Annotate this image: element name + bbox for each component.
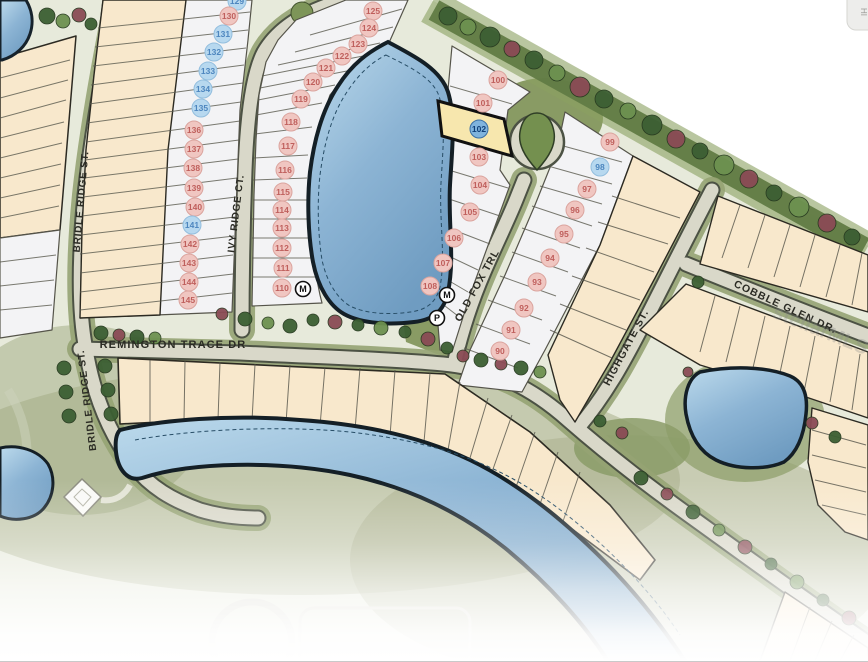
lot-number-badge: 138 xyxy=(184,159,202,177)
tree-icon xyxy=(504,41,520,57)
tree-icon xyxy=(829,431,841,443)
lot-number: 117 xyxy=(281,141,295,151)
lot-number-badge: 100 xyxy=(489,71,507,89)
lot-number-badge: 108 xyxy=(421,277,439,295)
amenity-marker-p: P xyxy=(430,311,445,326)
lot-number-badge: 141 xyxy=(183,216,201,234)
tree-icon xyxy=(818,214,836,232)
tree-icon xyxy=(352,319,364,331)
lot-number: 94 xyxy=(545,253,555,263)
street-label-remington-trace-dr: REMINGTON TRACE DR xyxy=(100,339,247,351)
tree-icon xyxy=(595,90,613,108)
tree-icon xyxy=(642,115,662,135)
lot-block-west-edge-white xyxy=(0,230,60,338)
lot-number-badge: 143 xyxy=(180,254,198,272)
tree-icon xyxy=(421,332,435,346)
lot-number: 113 xyxy=(275,223,289,233)
lot-number-badge: 93 xyxy=(528,273,546,291)
lot-number-badge: 90 xyxy=(491,342,509,360)
tree-icon xyxy=(374,321,388,335)
tree-icon xyxy=(616,427,628,439)
lot-number-badge: 135 xyxy=(192,99,210,117)
tree-icon xyxy=(94,326,108,340)
lot-number: 115 xyxy=(276,187,290,197)
lot-number: 134 xyxy=(196,84,210,94)
lot-number: 136 xyxy=(187,125,201,135)
tree-icon xyxy=(283,319,297,333)
lot-number: 90 xyxy=(495,346,505,356)
lot-number-badge: 123 xyxy=(349,35,367,53)
lot-number: 135 xyxy=(194,103,208,113)
tree-icon xyxy=(307,314,319,326)
tree-icon xyxy=(789,197,809,217)
lot-number-badge: 105 xyxy=(461,203,479,221)
lot-number-badge: 92 xyxy=(515,299,533,317)
lot-number: 112 xyxy=(275,243,289,253)
lot-number: 100 xyxy=(491,75,505,85)
lot-number: 137 xyxy=(187,144,201,154)
tree-icon xyxy=(480,27,500,47)
tree-icon xyxy=(262,317,274,329)
lot-number: 91 xyxy=(506,325,516,335)
lot-number: 107 xyxy=(436,258,450,268)
tree-icon xyxy=(534,366,546,378)
tree-icon xyxy=(72,8,86,22)
lot-number: 121 xyxy=(319,63,333,73)
tree-icon xyxy=(238,312,252,326)
lot-number: 140 xyxy=(188,202,202,212)
amenity-marker-m: M xyxy=(440,288,455,303)
lot-number-badge: 117 xyxy=(279,137,297,155)
lot-number: 92 xyxy=(519,303,529,313)
tree-icon xyxy=(59,385,73,399)
lot-number: 93 xyxy=(532,277,542,287)
lot-number-badge: 111 xyxy=(274,259,292,277)
lot-number: 105 xyxy=(463,207,477,217)
tree-icon xyxy=(216,308,228,320)
tree-icon xyxy=(98,359,112,373)
corner-ui-tab[interactable]: HI xyxy=(847,0,868,30)
tree-icon xyxy=(549,65,565,81)
lot-number-badge: 144 xyxy=(180,273,198,291)
tree-icon xyxy=(570,77,590,97)
tree-icon xyxy=(844,229,860,245)
amenity-marker-letter: M xyxy=(299,284,307,294)
tree-icon xyxy=(328,315,342,329)
lot-number-badge: 102 xyxy=(470,120,488,138)
lot-number: 102 xyxy=(472,124,486,134)
lot-number-badge: 96 xyxy=(566,201,584,219)
lot-number: 103 xyxy=(472,152,486,162)
lot-number-badge: 110 xyxy=(273,279,291,297)
tree-icon xyxy=(56,14,70,28)
pond-east xyxy=(685,368,806,468)
site-plan-image: BRIDLE RIDGE ST.BRIDLE RIDGE ST.IVY RIDG… xyxy=(0,0,868,662)
lot-number: 130 xyxy=(222,11,236,21)
lot-number-badge: 106 xyxy=(445,229,463,247)
lot-number: 131 xyxy=(216,29,230,39)
lot-number-badge: 104 xyxy=(471,176,489,194)
lot-number: 141 xyxy=(185,220,199,230)
lot-number-badge: 107 xyxy=(434,254,452,272)
lot-number: 104 xyxy=(473,180,487,190)
lot-number-badge: 125 xyxy=(364,2,382,20)
lot-number-badge: 114 xyxy=(273,201,291,219)
bottom-fade xyxy=(0,470,868,661)
tree-icon xyxy=(399,326,411,338)
lot-number-badge: 133 xyxy=(199,62,217,80)
lot-number: 110 xyxy=(275,283,289,293)
lot-number-badge: 132 xyxy=(205,43,223,61)
amenity-marker-m: M xyxy=(296,282,311,297)
tree-icon xyxy=(439,7,457,25)
lot-number: 132 xyxy=(207,47,221,57)
lot-number-badge: 97 xyxy=(578,180,596,198)
lot-number-badge: 134 xyxy=(194,80,212,98)
tree-icon xyxy=(101,383,115,397)
lot-number: 95 xyxy=(559,229,569,239)
lot-number: 129 xyxy=(230,0,244,6)
tree-icon xyxy=(514,361,528,375)
lot-number-badge: 95 xyxy=(555,225,573,243)
lot-number-badge: 142 xyxy=(181,235,199,253)
lot-number-badge: 131 xyxy=(214,25,232,43)
lot-number-badge: 119 xyxy=(292,90,310,108)
lot-number: 120 xyxy=(306,77,320,87)
lot-number-badge: 124 xyxy=(360,19,378,37)
lot-number: 123 xyxy=(351,39,365,49)
lot-number-badge: 98 xyxy=(591,158,609,176)
lot-number: 98 xyxy=(595,162,605,172)
lot-number-badge: 137 xyxy=(185,140,203,158)
tree-icon xyxy=(57,361,71,375)
lot-number: 99 xyxy=(605,137,615,147)
lot-number-badge: 118 xyxy=(282,113,300,131)
tree-icon xyxy=(104,407,118,421)
lot-number: 101 xyxy=(476,98,490,108)
site-plan-map: BRIDLE RIDGE ST.BRIDLE RIDGE ST.IVY RIDG… xyxy=(0,0,868,661)
lot-number-badge: 101 xyxy=(474,94,492,112)
lot-number-badge: 112 xyxy=(273,239,291,257)
tree-icon xyxy=(683,367,693,377)
lot-number: 144 xyxy=(182,277,196,287)
lot-number-badge: 99 xyxy=(601,133,619,151)
lot-number: 119 xyxy=(294,94,308,104)
tree-icon xyxy=(474,353,488,367)
lot-number-badge: 113 xyxy=(273,219,291,237)
lot-number: 122 xyxy=(335,51,349,61)
amenity-marker-letter: M xyxy=(443,290,451,300)
tree-icon xyxy=(457,350,469,362)
lot-number-badge: 91 xyxy=(502,321,520,339)
lot-number: 114 xyxy=(275,205,289,215)
tree-icon xyxy=(39,8,55,24)
lot-number-badge: 139 xyxy=(185,179,203,197)
lot-number-badge: 116 xyxy=(276,161,294,179)
lot-number-badge: 94 xyxy=(541,249,559,267)
lot-number: 125 xyxy=(366,6,380,16)
lot-number: 111 xyxy=(276,263,290,273)
tree-icon xyxy=(806,417,818,429)
lot-number: 143 xyxy=(182,258,196,268)
lot-number: 108 xyxy=(423,281,437,291)
cul-de-sac xyxy=(510,113,564,170)
lot-number-badge: 103 xyxy=(470,148,488,166)
lot-number-badge: 140 xyxy=(186,198,204,216)
lot-number-badge: 145 xyxy=(179,291,197,309)
tree-icon xyxy=(620,103,636,119)
tree-icon xyxy=(667,130,685,148)
lot-number: 118 xyxy=(284,117,298,127)
lot-number: 139 xyxy=(187,183,201,193)
lot-number: 133 xyxy=(201,66,215,76)
lot-number: 138 xyxy=(186,163,200,173)
lot-number-badge: 122 xyxy=(333,47,351,65)
lot-number: 142 xyxy=(183,239,197,249)
lot-number: 106 xyxy=(447,233,461,243)
lot-number-badge: 120 xyxy=(304,73,322,91)
lot-number: 145 xyxy=(181,295,195,305)
tree-icon xyxy=(441,342,453,354)
tree-icon xyxy=(525,51,543,69)
tree-icon xyxy=(692,143,708,159)
lot-number: 116 xyxy=(278,165,292,175)
tree-icon xyxy=(692,276,704,288)
tree-icon xyxy=(740,170,758,188)
lot-number-badge: 115 xyxy=(274,183,292,201)
tree-icon xyxy=(766,185,782,201)
lot-number-badge: 136 xyxy=(185,121,203,139)
tree-icon xyxy=(460,19,476,35)
lot-number: 124 xyxy=(362,23,376,33)
tree-icon xyxy=(714,155,734,175)
tree-icon xyxy=(594,415,606,427)
tree-icon xyxy=(85,18,97,30)
lot-number-badge: 121 xyxy=(317,59,335,77)
tree-icon xyxy=(62,409,76,423)
lot-number: 97 xyxy=(582,184,592,194)
lot-number: 96 xyxy=(570,205,580,215)
amenity-marker-letter: P xyxy=(434,313,440,323)
corner-ui-tab-label: HI xyxy=(859,8,868,16)
lot-number-badge: 130 xyxy=(220,7,238,25)
